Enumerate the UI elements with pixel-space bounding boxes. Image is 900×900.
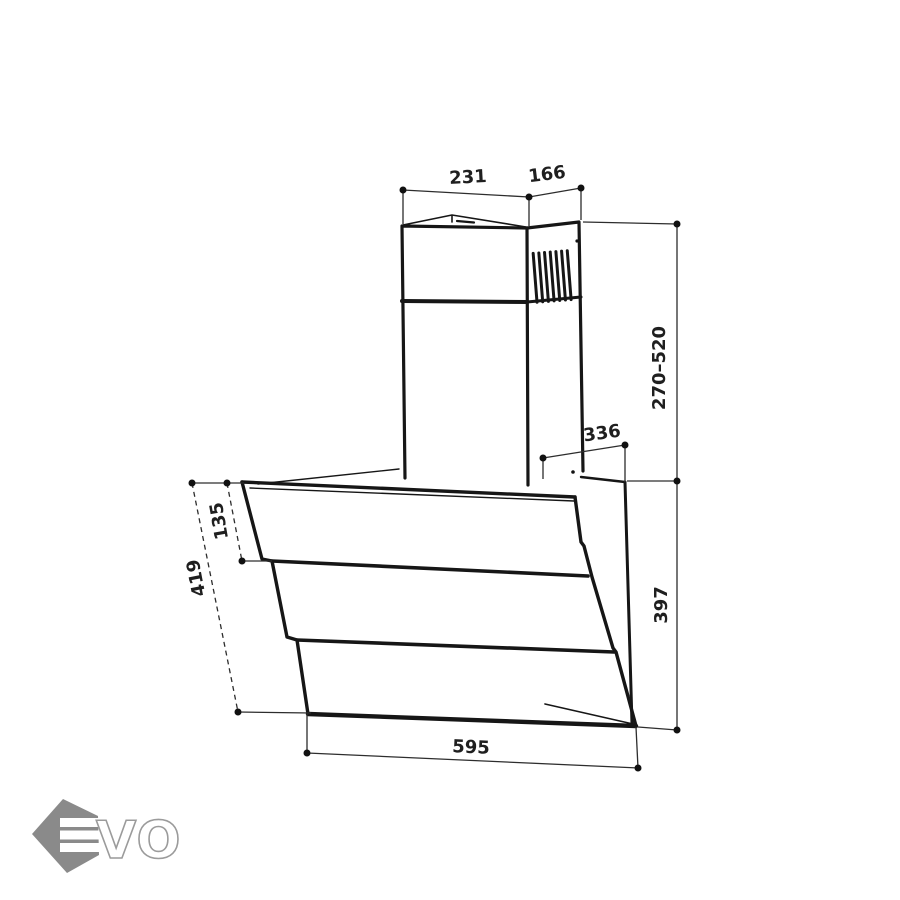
product-dimension-diagram: 231 166 270–520 336 397 595 419 135 VO bbox=[0, 0, 900, 900]
hood-body bbox=[242, 469, 636, 726]
hood-top-right-edge bbox=[581, 477, 625, 482]
hood-bottom-edge bbox=[308, 714, 636, 726]
vent-grille bbox=[533, 251, 571, 303]
chimney-front-face bbox=[402, 226, 528, 485]
panel-step-line-1 bbox=[272, 561, 588, 576]
dim-label-top-depth: 336 bbox=[582, 420, 622, 446]
dim-label-body-height: 397 bbox=[651, 586, 672, 624]
dim-label-chimney-depth: 166 bbox=[527, 162, 567, 187]
dimension-drawing-svg: 231 166 270–520 336 397 595 419 135 VO bbox=[0, 0, 900, 900]
panel-step-line-2 bbox=[297, 640, 614, 652]
logo-wordmark: VO bbox=[96, 811, 182, 871]
dim-label-front-length: 419 bbox=[183, 557, 211, 598]
chimney-joint-front bbox=[402, 301, 527, 302]
dim-label-body-width: 595 bbox=[452, 736, 490, 759]
dim-label-chimney-height-range: 270–520 bbox=[649, 326, 670, 410]
marker-dot bbox=[575, 239, 578, 242]
brand-logo: VO bbox=[32, 799, 182, 873]
marker-dot bbox=[571, 470, 575, 474]
dimension-annotations: 231 166 270–520 336 397 595 419 135 bbox=[183, 162, 681, 772]
chimney-rim-tab-bar bbox=[457, 221, 474, 223]
dimension-endpoints bbox=[189, 185, 681, 772]
chimney-side-face bbox=[527, 222, 583, 471]
dim-ext-419 bbox=[238, 712, 311, 713]
dim-label-front-top-offset: 135 bbox=[206, 501, 233, 542]
hood-left-stepped-edge bbox=[242, 482, 308, 714]
dim-label-chimney-width: 231 bbox=[449, 166, 488, 189]
chimney-duct bbox=[402, 215, 583, 485]
hood-top-back-edge bbox=[258, 469, 399, 484]
dim-line-top bbox=[403, 188, 581, 197]
logo-e-bars bbox=[60, 818, 99, 852]
